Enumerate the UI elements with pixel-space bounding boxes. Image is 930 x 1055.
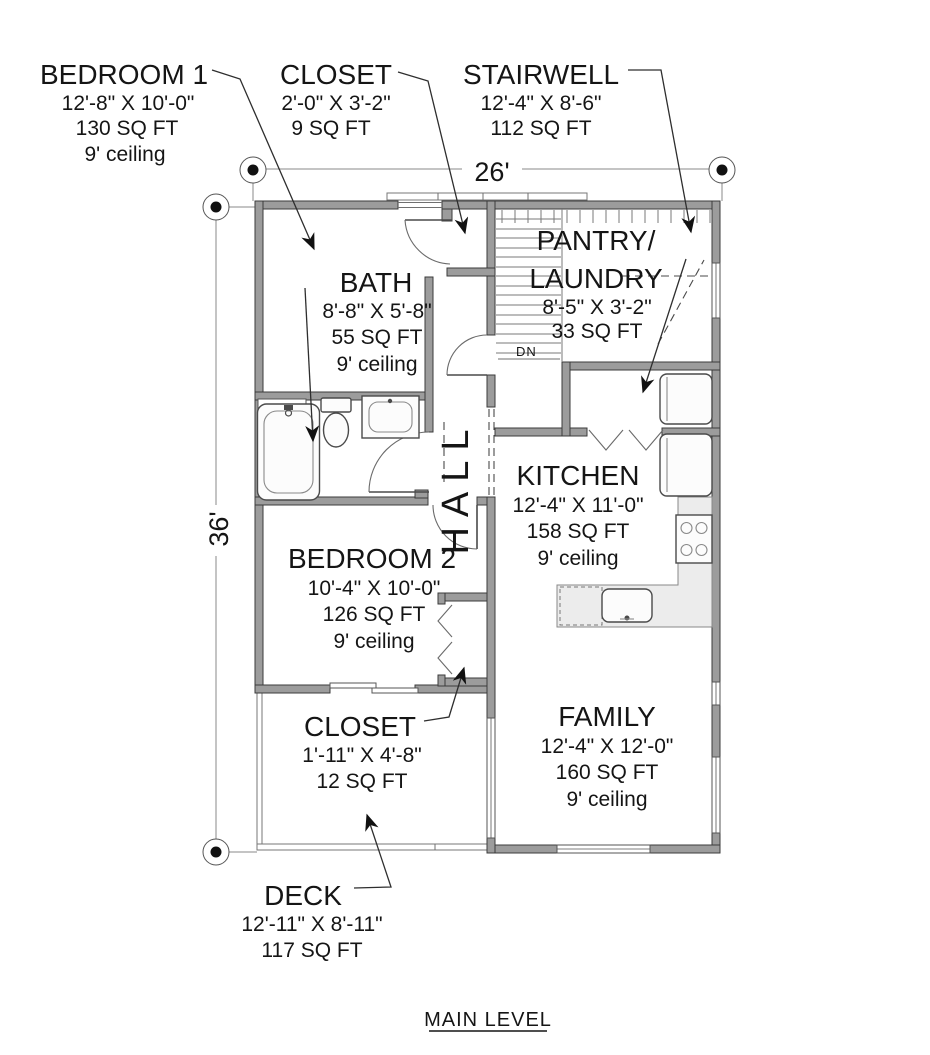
page-title: MAIN LEVEL [424, 1009, 552, 1031]
corner-marker [203, 194, 229, 220]
room-name: BEDROOM 1 [40, 59, 208, 90]
room-label-bedroom2: BEDROOM 2 10'-4" X 10'-0" 126 SQ FT 9' c… [288, 543, 456, 653]
room-name: HALL [435, 419, 477, 554]
room-ceiling: 9' ceiling [333, 630, 414, 653]
height-dimension-label: 36' [204, 511, 234, 546]
wall-top-left [255, 201, 398, 209]
room-label-family: FAMILY 12'-4" X 12'-0" 160 SQ FT 9' ceil… [541, 701, 674, 811]
entry-door-threshold [398, 203, 442, 208]
room-name: BATH [340, 267, 413, 298]
wall-bedroom2-door-jamb [477, 497, 487, 505]
sheet-title: MAIN LEVEL [424, 1009, 552, 1031]
kitchen-sink-fixture [602, 589, 652, 622]
room-area: 112 SQ FT [490, 117, 591, 140]
room-size: 12'-8" X 10'-0" [62, 92, 195, 115]
window-family-right-1 [712, 682, 720, 705]
room-name: BEDROOM 2 [288, 543, 456, 574]
pantry-bifold-doors [589, 430, 663, 450]
room-area: 160 SQ FT [556, 761, 659, 784]
room-area: 126 SQ FT [323, 603, 426, 626]
corner-marker [709, 157, 735, 183]
wall-right-2 [712, 318, 720, 682]
stair-door [447, 335, 487, 375]
room-size: 8'-8" X 5'-8" [322, 300, 431, 323]
window-family-right-2 [712, 757, 720, 833]
sliding-door-deck [330, 683, 418, 693]
hall-kitchen-opening [489, 409, 494, 495]
leader-deck [354, 815, 391, 888]
room-size: 8'-5" X 3'-2" [542, 296, 651, 319]
bathroom-sink-fixture [362, 396, 419, 438]
room-area: 158 SQ FT [527, 520, 630, 543]
corner-marker [240, 157, 266, 183]
bathtub-fixture [258, 404, 320, 500]
room-name: DECK [264, 880, 342, 911]
room-size: 12'-4" X 12'-0" [541, 735, 674, 758]
bath-fixtures [258, 396, 420, 500]
fridge-fixture [660, 434, 712, 496]
room-ceiling: 9' ceiling [537, 547, 618, 570]
down-label: DN [516, 344, 537, 359]
room-area: 117 SQ FT [261, 939, 362, 962]
wall-closet2-jamb-bottom [438, 675, 445, 686]
wall-top-right [442, 201, 720, 209]
wall-family-bottom-right [650, 845, 720, 853]
floor-plan-page: { "title": "MAIN LEVEL", "dimensions": {… [0, 0, 930, 1055]
wall-closet2-top [445, 593, 487, 601]
window-family-bottom [557, 845, 650, 853]
room-label-bedroom1: BEDROOM 1 12'-8" X 10'-0" 130 SQ FT 9' c… [40, 59, 208, 166]
room-size: 12'-11" X 8'-11" [241, 913, 382, 936]
room-ceiling: 9' ceiling [566, 788, 647, 811]
wall-right-1 [712, 201, 720, 263]
wall-laundry-left [562, 362, 570, 436]
wall-closet2-bottom [445, 678, 487, 686]
entry-closet-door [405, 220, 452, 264]
room-label-bath: BATH 8'-8" X 5'-8" 55 SQ FT 9' ceiling [322, 267, 431, 376]
corner-marker [203, 839, 229, 865]
porch-step [387, 193, 587, 200]
room-area: 130 SQ FT [76, 117, 179, 140]
toilet-fixture [321, 398, 351, 447]
upper-flight-hatch [502, 210, 710, 223]
room-area: 33 SQ FT [551, 320, 642, 343]
room-size: 12'-4" X 11'-0" [512, 494, 643, 517]
room-size: 1'-11" X 4'-8" [302, 744, 421, 767]
washer-dryer-fixture [660, 374, 712, 424]
wall-bedroom2-bottom-left [255, 685, 330, 693]
width-dimension-label: 26' [474, 157, 509, 187]
room-name-line2: LAUNDRY [529, 263, 663, 294]
room-name: STAIRWELL [463, 59, 619, 90]
room-label-closet-entry: CLOSET 2'-0" X 3'-2" 9 SQ FT [280, 59, 392, 140]
room-size: 12'-4" X 8'-6" [481, 92, 602, 115]
room-area: 9 SQ FT [291, 117, 371, 140]
wall-right-3 [712, 705, 720, 757]
room-area: 12 SQ FT [316, 770, 407, 793]
wall-family-left-corner [487, 838, 495, 853]
room-ceiling: 9' ceiling [84, 143, 165, 166]
range-fixture [676, 515, 712, 563]
room-size: 10'-4" X 10'-0" [308, 577, 441, 600]
closet2-bifold-doors [438, 605, 452, 674]
floor-plan-drawing: 26' 36' [0, 0, 930, 1055]
room-area: 55 SQ FT [331, 326, 422, 349]
room-label-pantry-laundry: PANTRY/ LAUNDRY 8'-5" X 3'-2" 33 SQ FT [529, 225, 663, 343]
window-stairwell [712, 263, 720, 318]
wall-family-bottom-left [487, 845, 557, 853]
room-label-stairwell: STAIRWELL 12'-4" X 8'-6" 112 SQ FT [463, 59, 619, 140]
wall-laundry-bottom-left [495, 428, 587, 436]
wall-stairwell-bottom [562, 362, 720, 370]
room-name: FAMILY [558, 701, 656, 732]
room-name: CLOSET [280, 59, 392, 90]
room-ceiling: 9' ceiling [336, 353, 417, 376]
room-label-kitchen: KITCHEN 12'-4" X 11'-0" 158 SQ FT 9' cei… [512, 460, 643, 570]
bath-door [369, 432, 429, 492]
window-family-left [487, 718, 495, 838]
room-label-closet2: CLOSET 1'-11" X 4'-8" 12 SQ FT [302, 711, 421, 793]
room-name: KITCHEN [517, 460, 640, 491]
room-name: CLOSET [304, 711, 416, 742]
room-name-line1: PANTRY/ [537, 225, 656, 256]
room-size: 2'-0" X 3'-2" [281, 92, 390, 115]
wall-entry-closet-bottom [447, 268, 495, 276]
room-label-hall: HALL [435, 419, 477, 554]
wall-center-mid [487, 375, 495, 407]
wall-center-lower [487, 497, 495, 718]
room-label-deck: DECK 12'-11" X 8'-11" 117 SQ FT [241, 880, 382, 962]
